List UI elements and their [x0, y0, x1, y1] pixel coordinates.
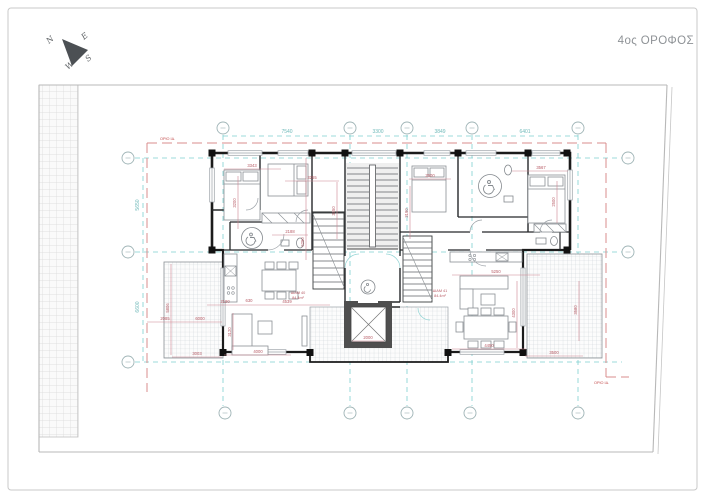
- balcony-right: [527, 254, 602, 358]
- coffee-table: [481, 294, 495, 305]
- grid-dim-7540: 7540: [281, 129, 292, 135]
- dim-4539: 4539: [282, 299, 292, 304]
- dim-630: 630: [246, 298, 254, 303]
- dim-4450: 4450: [484, 343, 494, 348]
- dim-3190: 3190: [404, 208, 409, 218]
- apartment-area-left: 84.4m²: [292, 296, 305, 300]
- internal-stair-right: [403, 236, 432, 302]
- dim-3500: 3500: [549, 350, 559, 355]
- internal-stair-left: [313, 213, 344, 289]
- grid-dim-3849: 3849: [434, 129, 445, 135]
- boundary-label-top: ΟΡΙΟ ΙΔ.: [160, 137, 175, 141]
- stair-stringer: [370, 165, 376, 247]
- apartment-area-right: 84.4m²: [434, 294, 447, 298]
- wc: [551, 237, 558, 246]
- dim-3580: 3580: [573, 305, 578, 315]
- bed: [528, 175, 565, 223]
- bed: [224, 170, 260, 220]
- dim-3003: 3003: [192, 351, 202, 356]
- dim-4300: 4300: [511, 308, 516, 318]
- wc: [505, 165, 512, 175]
- kitchen-right: [450, 252, 522, 262]
- plot-hatch-strip: [39, 85, 78, 437]
- tv-unit: [302, 316, 307, 346]
- dim-3255: 3255: [307, 175, 317, 180]
- plan-title: 4ος ΟΡΟΦΟΣ: [618, 35, 694, 47]
- grid-dim-6600: 6600: [135, 301, 141, 312]
- dim-3343: 3343: [247, 163, 257, 168]
- wardrobe: [534, 224, 566, 232]
- drawing-sheet: 4ος ΟΡΟΦΟΣ N E S W: [0, 0, 705, 498]
- elevator-shaft: [344, 299, 392, 348]
- dim-2188: 2188: [285, 229, 295, 234]
- dim-2000: 2000: [363, 335, 373, 340]
- coffee-table: [258, 321, 272, 334]
- dim-3120: 3120: [227, 327, 232, 337]
- main-staircase: [346, 163, 399, 249]
- grid-dim-3300: 3300: [372, 129, 383, 135]
- dim-6250: 6250: [300, 237, 305, 247]
- dim-6000: 6000: [195, 316, 205, 321]
- grid-dim-5650: 5650: [135, 199, 141, 210]
- dim-2500a: 2500: [425, 173, 435, 178]
- veranda-left: [164, 262, 223, 358]
- kitchen-left: [224, 254, 237, 302]
- dim-5806: 5806: [165, 303, 170, 313]
- grid-dim-6401: 6401: [519, 129, 530, 135]
- apartment-label-left: ΔΙΑΜ 40: [291, 291, 306, 295]
- dim-3567: 3567: [536, 165, 546, 170]
- basin: [536, 238, 546, 244]
- floor-plan-canvas: 4ος ΟΡΟΦΟΣ N E S W: [0, 0, 705, 498]
- dim-4000: 4000: [253, 349, 263, 354]
- apartment-label-right: ΔΙΑΜ 41: [433, 289, 448, 293]
- basin: [504, 196, 513, 202]
- dim-3200: 3200: [232, 198, 237, 208]
- dim-2190: 2190: [220, 299, 230, 304]
- dim-2500b: 2500: [551, 197, 556, 207]
- dim-3450: 3450: [331, 206, 336, 216]
- boundary-label-bottom: ΟΡΙΟ ΙΔ.: [594, 381, 609, 385]
- dim-2085: 2085: [160, 316, 170, 321]
- wardrobe: [262, 213, 310, 223]
- dim-5250: 5250: [491, 269, 501, 274]
